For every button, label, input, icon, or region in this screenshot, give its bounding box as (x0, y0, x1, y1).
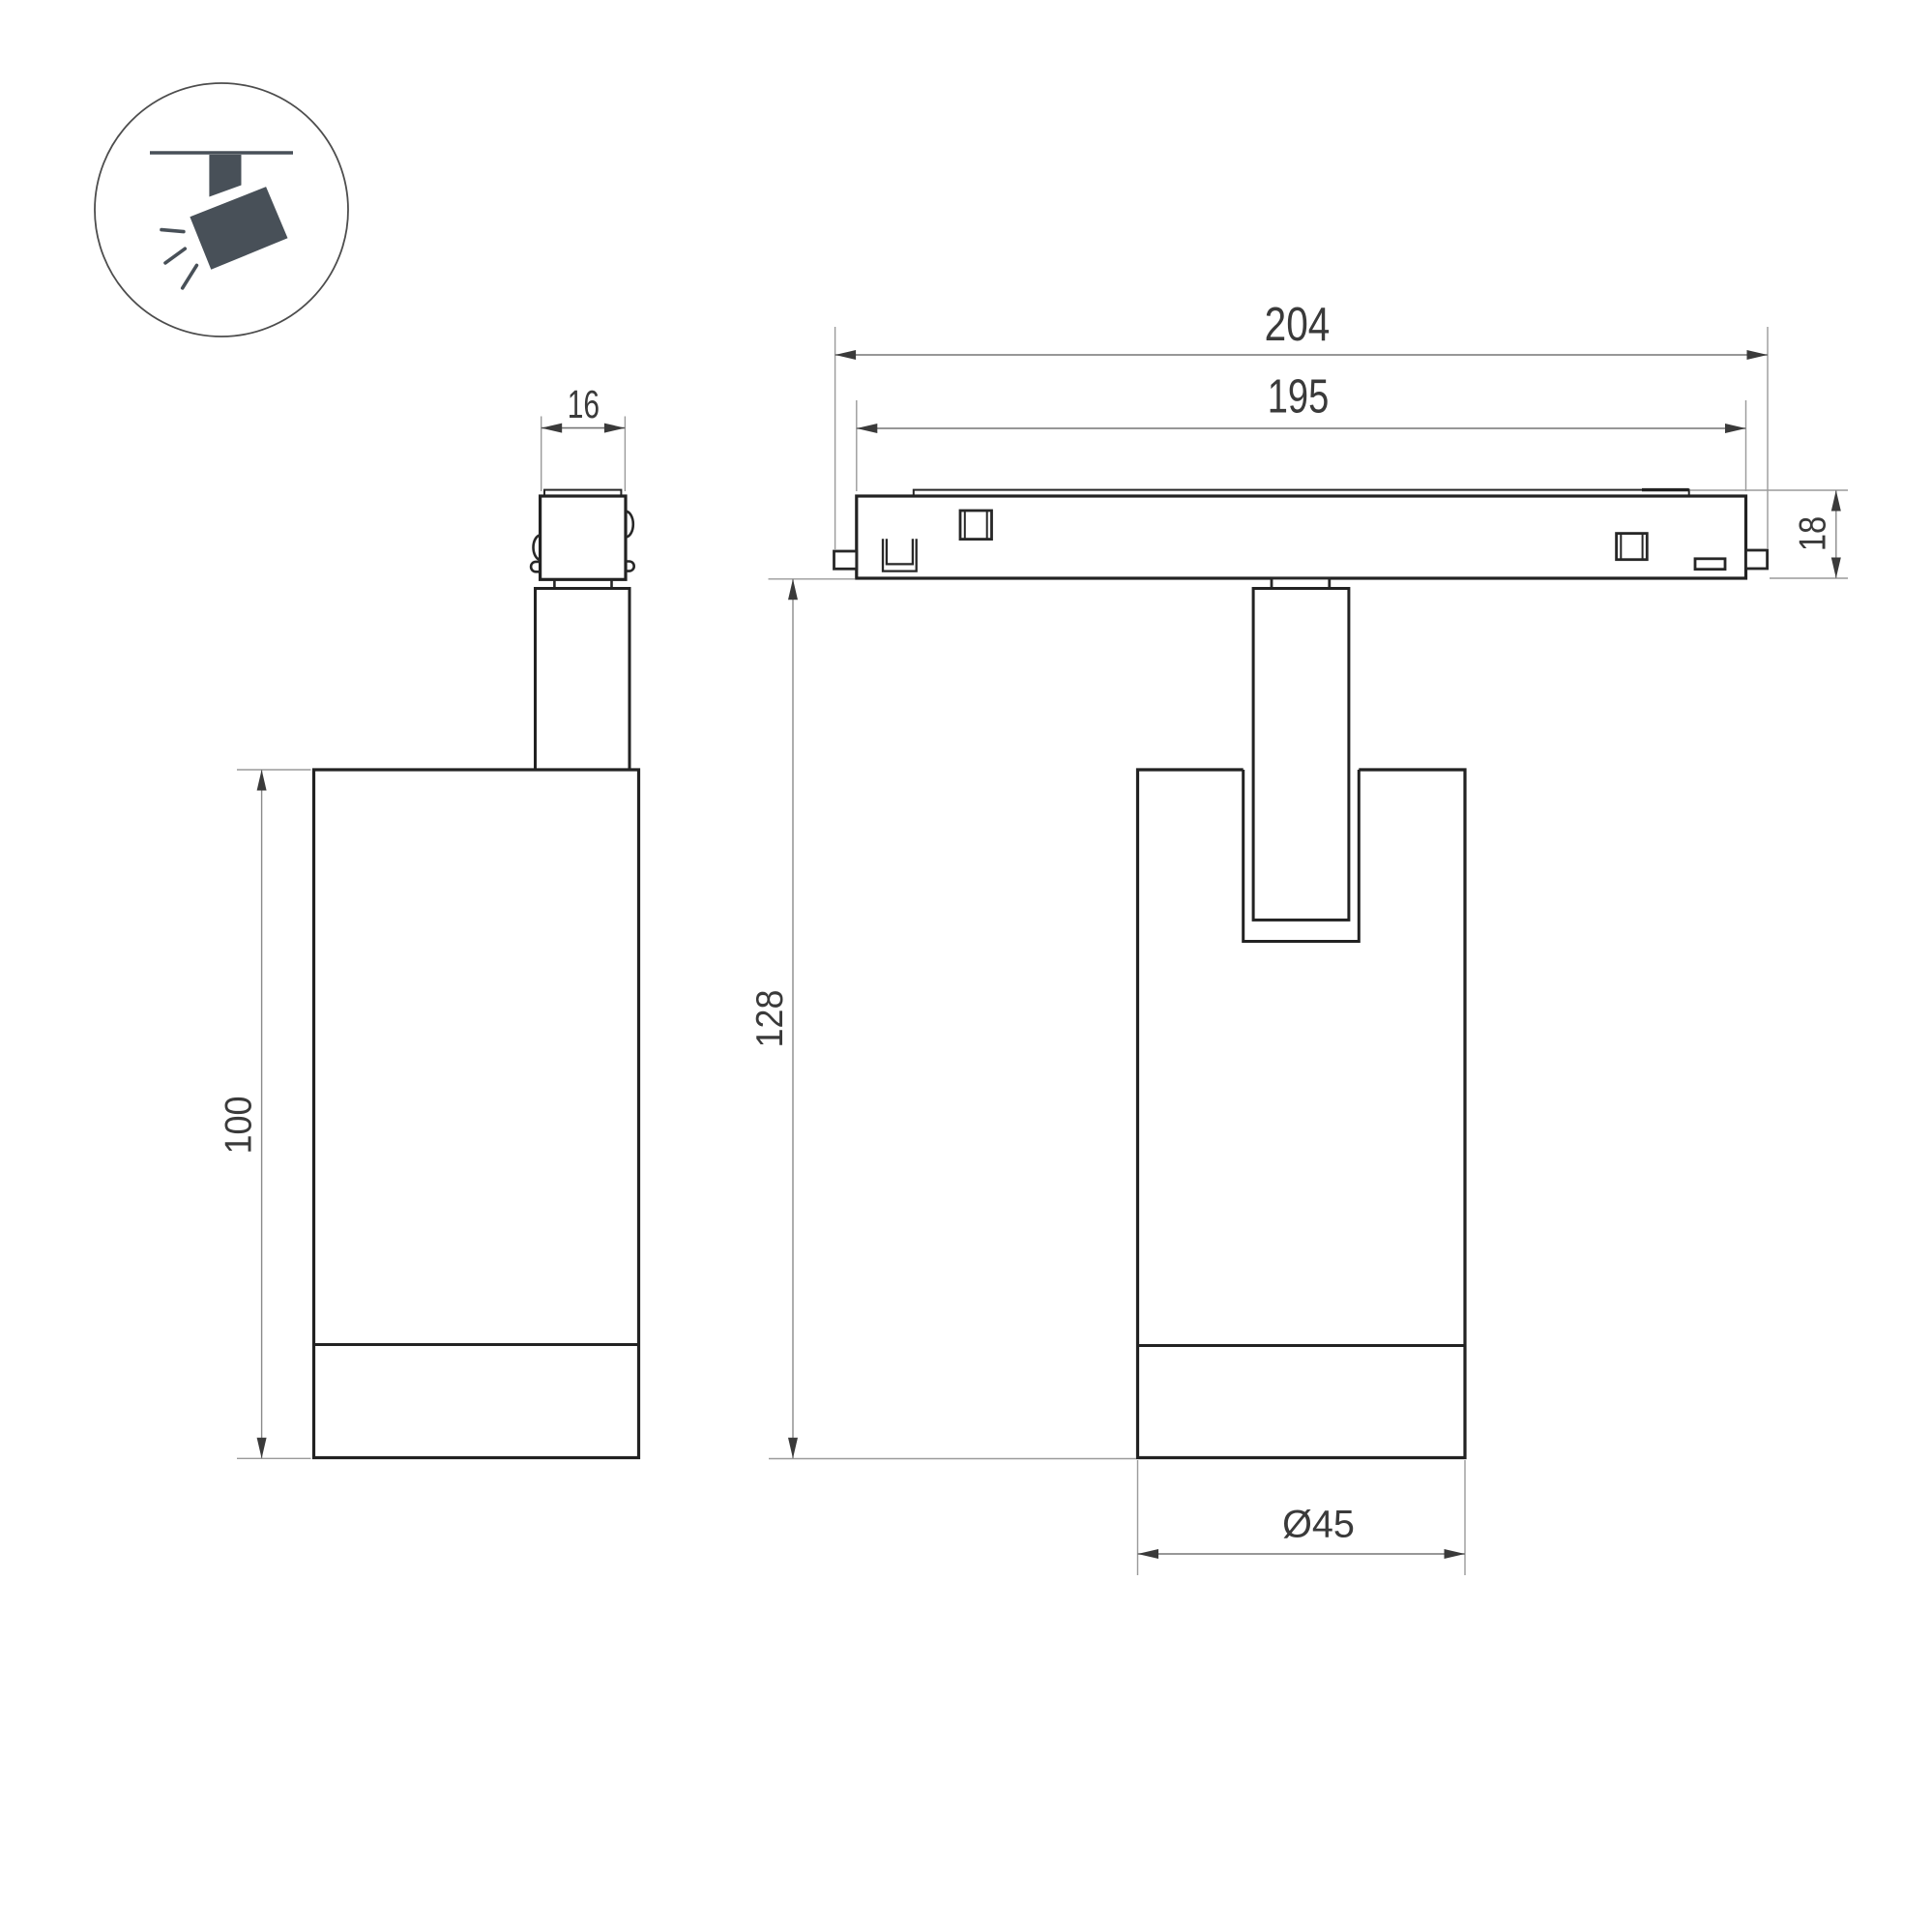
svg-text:100: 100 (219, 1097, 260, 1155)
svg-text:16: 16 (568, 382, 600, 426)
svg-text:204: 204 (1265, 298, 1331, 351)
svg-text:195: 195 (1268, 371, 1330, 424)
svg-text:Ø45: Ø45 (1282, 1504, 1355, 1546)
svg-text:18: 18 (1792, 516, 1833, 551)
svg-text:128: 128 (749, 990, 791, 1048)
